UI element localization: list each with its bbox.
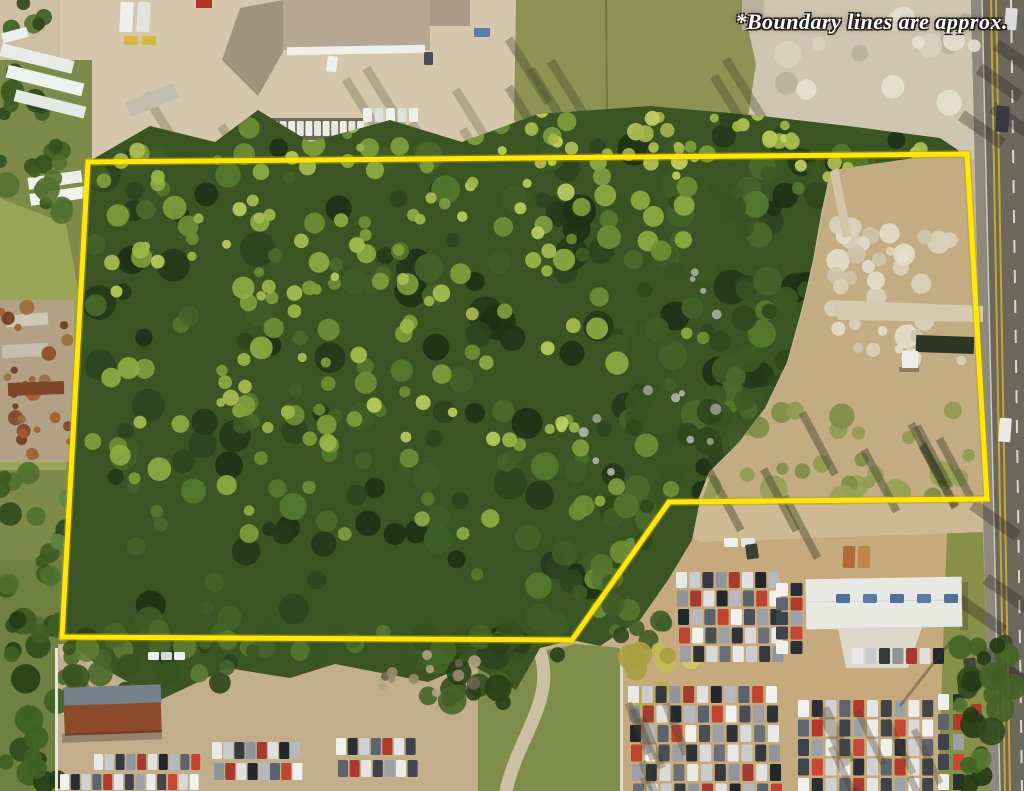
car-dark-office: [424, 52, 433, 65]
yard-fence-left: [55, 648, 58, 791]
office-building-roof: [283, 0, 430, 50]
lot-fence: [620, 648, 623, 791]
rusty-building-band: [64, 684, 162, 705]
red-car-top: [196, 0, 212, 8]
boundary-disclaimer-text: *Boundary lines are approx.: [735, 9, 1008, 35]
vehicle-road-white: [998, 418, 1012, 443]
white-shed: [902, 351, 918, 368]
car-blue-office: [474, 28, 490, 37]
excavation-pit: [916, 335, 975, 354]
white-vans-row: [363, 108, 418, 122]
drive-dark-van: [745, 543, 759, 560]
warehouse-roof: [806, 577, 963, 630]
lot-cars-row-665: [852, 648, 944, 664]
vehicle-road-dark: [995, 106, 1010, 133]
office-building-annex: [430, 0, 470, 26]
utility-line-shadow: [606, 0, 607, 116]
aerial-property-photo: *Boundary lines are approx.: [0, 0, 1024, 791]
scrapyard-rust-bar: [8, 381, 64, 396]
yard-cars-small: [148, 652, 185, 660]
aerial-scene: [0, 0, 1024, 791]
scrapyard-slab-b: [2, 343, 49, 358]
